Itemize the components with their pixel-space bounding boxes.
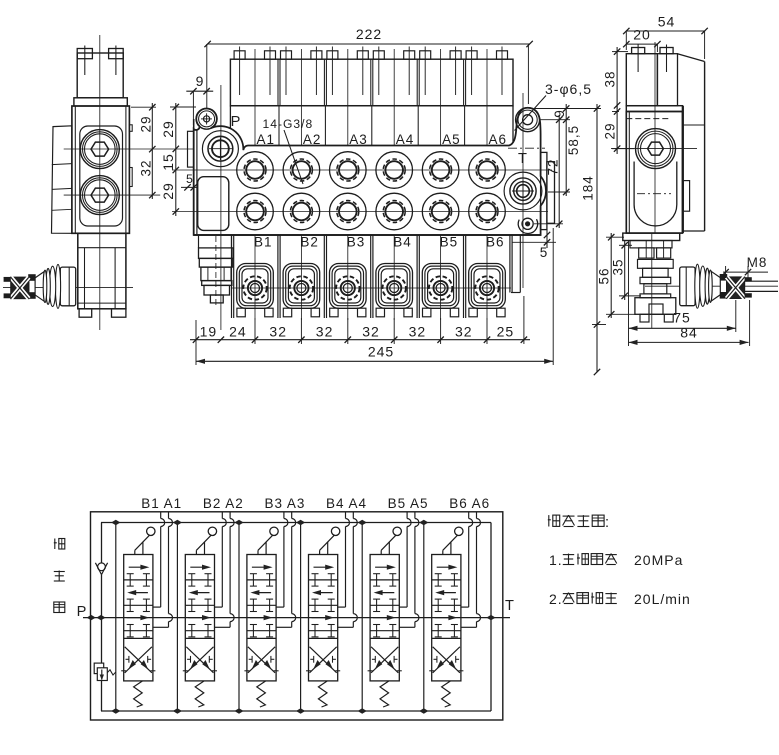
svg-text:T: T	[518, 151, 528, 167]
svg-text:38: 38	[603, 70, 618, 87]
svg-text::: :	[605, 515, 610, 531]
svg-text:25: 25	[497, 324, 515, 340]
svg-text:B6: B6	[449, 496, 468, 511]
svg-text:A5: A5	[442, 132, 461, 147]
svg-text:A4: A4	[348, 496, 367, 511]
svg-text:29: 29	[139, 115, 154, 132]
svg-text:245: 245	[368, 344, 394, 360]
svg-text:A2: A2	[303, 132, 322, 147]
svg-text:222: 222	[356, 26, 382, 42]
svg-text:20MPa: 20MPa	[634, 552, 683, 568]
svg-text:A2: A2	[225, 496, 244, 511]
svg-text:A6: A6	[472, 496, 491, 511]
svg-text:P: P	[231, 114, 242, 130]
svg-text:A5: A5	[410, 496, 429, 511]
svg-text:72: 72	[546, 158, 561, 175]
svg-text:84: 84	[680, 325, 698, 341]
svg-text:32: 32	[362, 324, 380, 340]
svg-text:14-G3/8: 14-G3/8	[263, 117, 314, 131]
svg-text:56: 56	[597, 267, 612, 284]
svg-text:T: T	[505, 598, 515, 614]
svg-text:B6: B6	[486, 235, 505, 250]
svg-text:B1: B1	[254, 235, 273, 250]
svg-text:B4: B4	[326, 496, 345, 511]
svg-text:2.: 2.	[549, 591, 563, 607]
svg-text:3-φ6,5: 3-φ6,5	[545, 81, 592, 97]
svg-text:54: 54	[658, 14, 676, 30]
svg-text:A4: A4	[396, 132, 415, 147]
svg-text:32: 32	[455, 324, 473, 340]
svg-text:58,5: 58,5	[566, 125, 581, 155]
svg-text:29: 29	[160, 120, 176, 138]
svg-text:184: 184	[581, 175, 596, 201]
svg-text:5: 5	[540, 245, 549, 260]
svg-text:32: 32	[269, 324, 287, 340]
svg-text:B1: B1	[141, 496, 160, 511]
svg-text:75: 75	[673, 310, 691, 326]
svg-text:A1: A1	[164, 496, 183, 511]
svg-text:20: 20	[633, 27, 651, 43]
svg-text:35: 35	[611, 258, 626, 275]
svg-text:A6: A6	[489, 132, 508, 147]
svg-text:24: 24	[229, 324, 247, 340]
svg-text:29: 29	[160, 182, 176, 200]
svg-text:A3: A3	[287, 496, 306, 511]
svg-text:B3: B3	[264, 496, 283, 511]
svg-text:B3: B3	[347, 235, 366, 250]
svg-text:5: 5	[186, 172, 194, 186]
svg-text:32: 32	[316, 324, 334, 340]
svg-text:9: 9	[196, 73, 205, 89]
svg-text:20L/min: 20L/min	[634, 591, 691, 607]
svg-text:B2: B2	[203, 496, 222, 511]
svg-text:15: 15	[160, 153, 176, 171]
svg-text:M8: M8	[747, 255, 768, 270]
svg-text:29: 29	[603, 122, 618, 139]
svg-text:1.: 1.	[549, 552, 563, 568]
svg-text:B2: B2	[300, 235, 319, 250]
svg-text:A3: A3	[349, 132, 368, 147]
svg-text:B4: B4	[393, 235, 412, 250]
svg-text:19: 19	[200, 324, 218, 340]
svg-text:32: 32	[139, 159, 154, 176]
svg-text:B5: B5	[440, 235, 459, 250]
svg-text:B5: B5	[388, 496, 407, 511]
svg-text:A1: A1	[257, 132, 276, 147]
svg-text:32: 32	[409, 324, 427, 340]
